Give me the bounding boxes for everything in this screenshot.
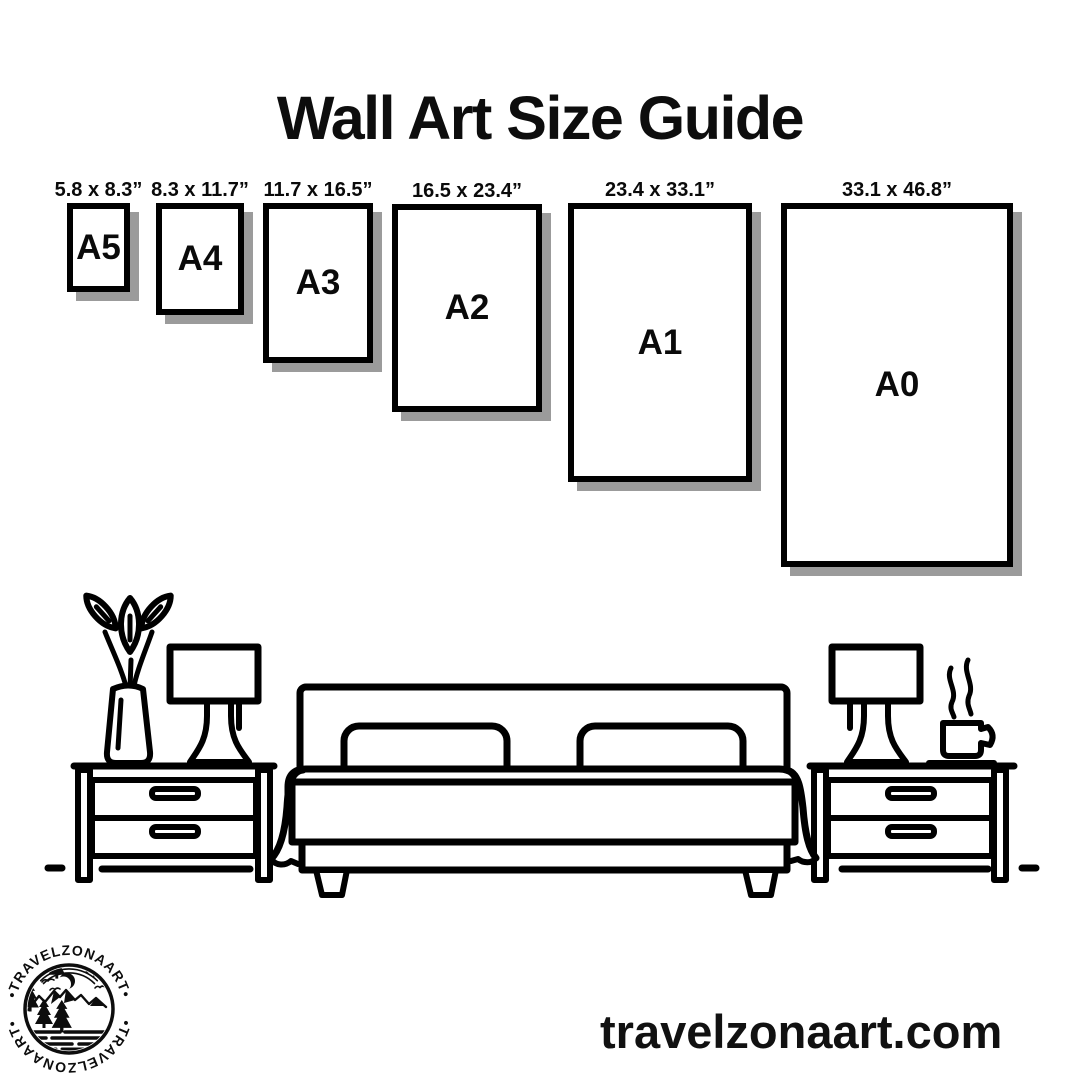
- size-dimensions-label: 16.5 x 23.4”: [412, 180, 522, 203]
- brand-logo: •TRAVELZONAART• •TRAVELZONAART•: [0, 930, 140, 1080]
- size-label: A3: [296, 263, 341, 303]
- size-frame-a3: 11.7 x 16.5” A3: [263, 203, 373, 363]
- drawer-handle: [888, 827, 934, 836]
- bedroom-illustration: [35, 585, 1045, 900]
- size-dimensions-label: 5.8 x 8.3”: [55, 179, 143, 202]
- size-dimensions-label: 11.7 x 16.5”: [264, 179, 373, 202]
- drawer-handle: [152, 827, 198, 836]
- size-frame-a1: 23.4 x 33.1” A1: [568, 203, 752, 482]
- nightstand-left: [74, 766, 274, 880]
- bed-leg: [316, 870, 347, 895]
- bed-leg: [745, 870, 776, 895]
- size-dimensions-label: 23.4 x 33.1”: [605, 179, 715, 202]
- drawer-handle: [152, 789, 198, 798]
- nightstand-right: [810, 766, 1014, 880]
- wall-art-size-guide-poster: Wall Art Size Guide 5.8 x 8.3” A5 8.3 x …: [0, 0, 1080, 1080]
- coffee-cup-steam-icon: [929, 660, 994, 763]
- vase-with-plant-icon: [81, 591, 176, 763]
- double-bed-icon: [271, 687, 816, 895]
- size-label: A1: [638, 323, 683, 363]
- size-frame-a2: 16.5 x 23.4” A2: [392, 204, 542, 412]
- size-frame-a0: 33.1 x 46.8” A0: [781, 203, 1013, 567]
- size-label: A5: [76, 228, 121, 268]
- bed-base: [302, 842, 787, 870]
- size-frame-a5: 5.8 x 8.3” A5: [67, 203, 130, 292]
- size-label: A2: [445, 288, 490, 328]
- blanket-front: [292, 782, 795, 842]
- table-lamp-right-icon: [832, 647, 920, 762]
- size-label: A4: [178, 239, 223, 279]
- page-title: Wall Art Size Guide: [0, 83, 1080, 153]
- size-frame-a4: 8.3 x 11.7” A4: [156, 203, 244, 315]
- size-label: A0: [875, 365, 920, 405]
- drawer-handle: [888, 789, 934, 798]
- website-url: travelzonaart.com: [600, 1004, 1002, 1059]
- size-dimensions-label: 33.1 x 46.8”: [842, 179, 952, 202]
- table-lamp-left-icon: [170, 647, 258, 762]
- size-dimensions-label: 8.3 x 11.7”: [151, 179, 249, 202]
